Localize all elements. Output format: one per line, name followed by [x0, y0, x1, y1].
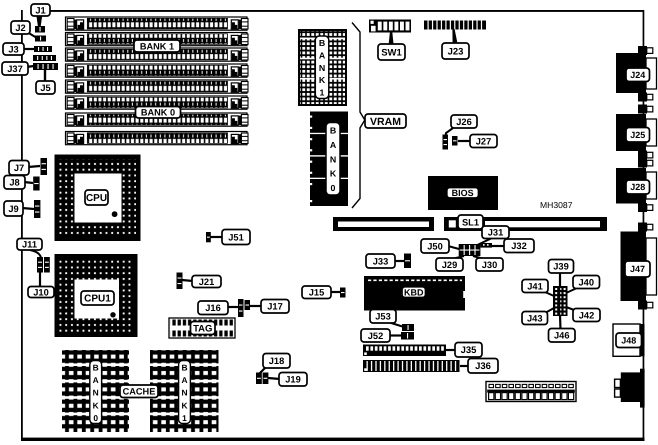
- svg-text:J41: J41: [527, 281, 543, 291]
- svg-text:B: B: [93, 363, 99, 373]
- svg-text:J8: J8: [9, 178, 19, 188]
- svg-text:SW1: SW1: [381, 47, 402, 58]
- svg-text:J5: J5: [40, 83, 50, 93]
- svg-text:J26: J26: [456, 117, 472, 127]
- svg-text:J24: J24: [630, 70, 645, 80]
- svg-text:K: K: [181, 400, 187, 410]
- svg-text:BANK 1: BANK 1: [140, 41, 174, 51]
- svg-text:J33: J33: [373, 256, 389, 266]
- svg-text:1: 1: [182, 413, 187, 423]
- svg-text:K: K: [319, 75, 326, 85]
- svg-text:J1: J1: [35, 5, 45, 15]
- svg-text:J30: J30: [482, 260, 498, 270]
- svg-text:J7: J7: [14, 163, 24, 173]
- svg-text:SL1: SL1: [462, 217, 479, 227]
- svg-text:VRAM: VRAM: [370, 116, 401, 128]
- svg-text:0: 0: [331, 183, 336, 193]
- svg-text:J19: J19: [285, 375, 301, 385]
- svg-text:B: B: [330, 126, 336, 136]
- svg-text:J43: J43: [527, 313, 543, 323]
- svg-text:J15: J15: [309, 288, 325, 298]
- svg-text:J10: J10: [33, 287, 49, 297]
- svg-text:K: K: [93, 400, 99, 410]
- svg-text:J35: J35: [461, 345, 478, 356]
- svg-text:1: 1: [320, 88, 325, 98]
- svg-text:J11: J11: [22, 240, 37, 250]
- svg-text:J39: J39: [553, 262, 569, 272]
- svg-text:J46: J46: [554, 331, 570, 341]
- svg-text:CPU: CPU: [86, 193, 107, 204]
- svg-text:J9: J9: [8, 204, 18, 214]
- svg-text:A: A: [93, 375, 99, 385]
- svg-text:CACHE: CACHE: [123, 387, 156, 397]
- svg-text:J32: J32: [511, 241, 527, 251]
- svg-text:A: A: [319, 50, 326, 60]
- svg-text:B: B: [181, 363, 187, 373]
- svg-text:J40: J40: [578, 277, 594, 287]
- svg-text:N: N: [319, 63, 325, 73]
- svg-text:J2: J2: [15, 23, 25, 33]
- svg-text:J18: J18: [269, 356, 285, 366]
- svg-text:J25: J25: [630, 130, 645, 140]
- svg-text:0: 0: [93, 413, 98, 423]
- svg-text:J51: J51: [228, 232, 244, 242]
- svg-text:N: N: [330, 154, 336, 164]
- svg-text:J21: J21: [199, 277, 215, 287]
- svg-text:MH3087: MH3087: [540, 200, 573, 210]
- svg-text:J16: J16: [205, 303, 221, 313]
- svg-text:N: N: [181, 388, 187, 398]
- svg-text:TAG: TAG: [193, 323, 212, 334]
- svg-text:N: N: [93, 388, 99, 398]
- svg-text:K: K: [330, 169, 337, 179]
- svg-text:A: A: [330, 140, 337, 150]
- svg-text:J28: J28: [630, 182, 645, 192]
- svg-text:KBD: KBD: [404, 287, 424, 297]
- svg-text:J37: J37: [7, 64, 23, 74]
- svg-text:J17: J17: [267, 302, 283, 312]
- svg-text:J47: J47: [630, 264, 645, 274]
- svg-text:J3: J3: [8, 44, 18, 54]
- svg-text:J48: J48: [621, 335, 636, 345]
- svg-text:J36: J36: [475, 361, 491, 372]
- svg-text:J42: J42: [579, 310, 595, 320]
- svg-text:CPU1: CPU1: [84, 294, 111, 305]
- svg-text:J27: J27: [476, 136, 492, 146]
- svg-text:J31: J31: [488, 228, 504, 238]
- svg-text:BANK 0: BANK 0: [141, 108, 175, 118]
- svg-text:BIOS: BIOS: [452, 188, 474, 198]
- svg-text:J23: J23: [448, 46, 464, 57]
- svg-text:J29: J29: [442, 260, 458, 270]
- svg-text:B: B: [319, 38, 325, 48]
- svg-text:A: A: [181, 375, 187, 385]
- svg-text:J50: J50: [427, 241, 443, 251]
- svg-text:J53: J53: [375, 312, 391, 322]
- svg-text:J52: J52: [368, 331, 384, 341]
